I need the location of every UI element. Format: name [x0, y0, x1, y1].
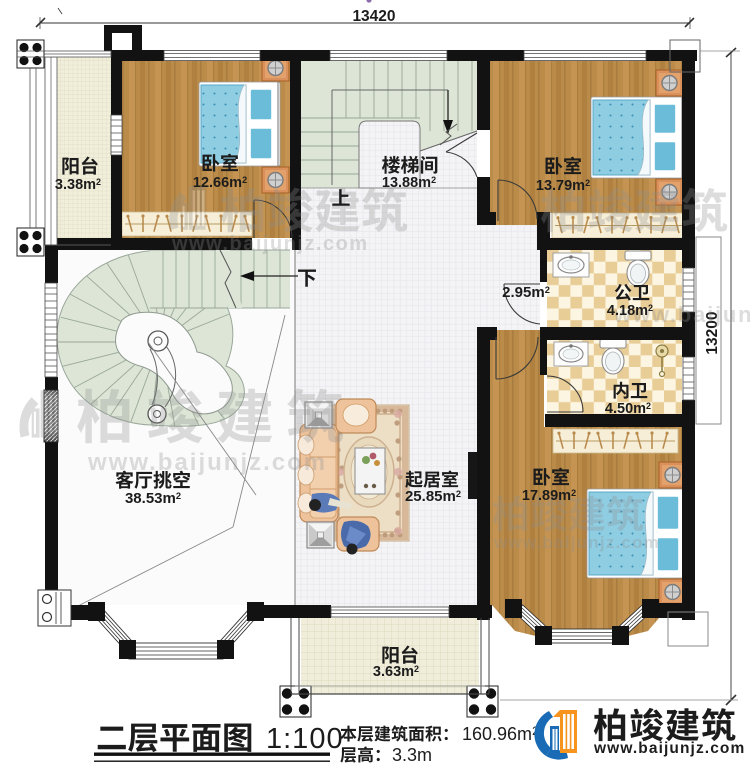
- svg-text:17.89m2: 17.89m2: [522, 488, 576, 504]
- svg-text:12.66m2: 12.66m2: [193, 175, 247, 191]
- svg-text:13420: 13420: [352, 8, 395, 25]
- svg-text:1:100: 1:100: [266, 723, 344, 755]
- svg-text:www.baijunjz.com: www.baijunjz.com: [593, 740, 745, 757]
- svg-text:www.baijunjz.com: www.baijunjz.com: [171, 233, 369, 255]
- svg-text:4.50m2: 4.50m2: [605, 401, 651, 417]
- svg-text:13.88m2: 13.88m2: [382, 175, 436, 191]
- svg-text:3.38m2: 3.38m2: [55, 177, 101, 193]
- svg-text:25.85m2: 25.85m2: [405, 488, 461, 505]
- svg-text:3.3m: 3.3m: [392, 745, 432, 765]
- svg-text:38.53m2: 38.53m2: [125, 490, 181, 507]
- svg-text:www.baijunjz.com: www.baijunjz.com: [493, 533, 660, 552]
- svg-text:160.96m2: 160.96m2: [462, 724, 539, 744]
- svg-text:13.79m2: 13.79m2: [536, 178, 590, 194]
- svg-text:www.baijunjz.com: www.baijunjz.com: [87, 449, 327, 476]
- svg-text:2.95m2: 2.95m2: [502, 284, 550, 301]
- svg-text:3.63m2: 3.63m2: [373, 664, 419, 680]
- svg-text:4.18m2: 4.18m2: [607, 303, 653, 319]
